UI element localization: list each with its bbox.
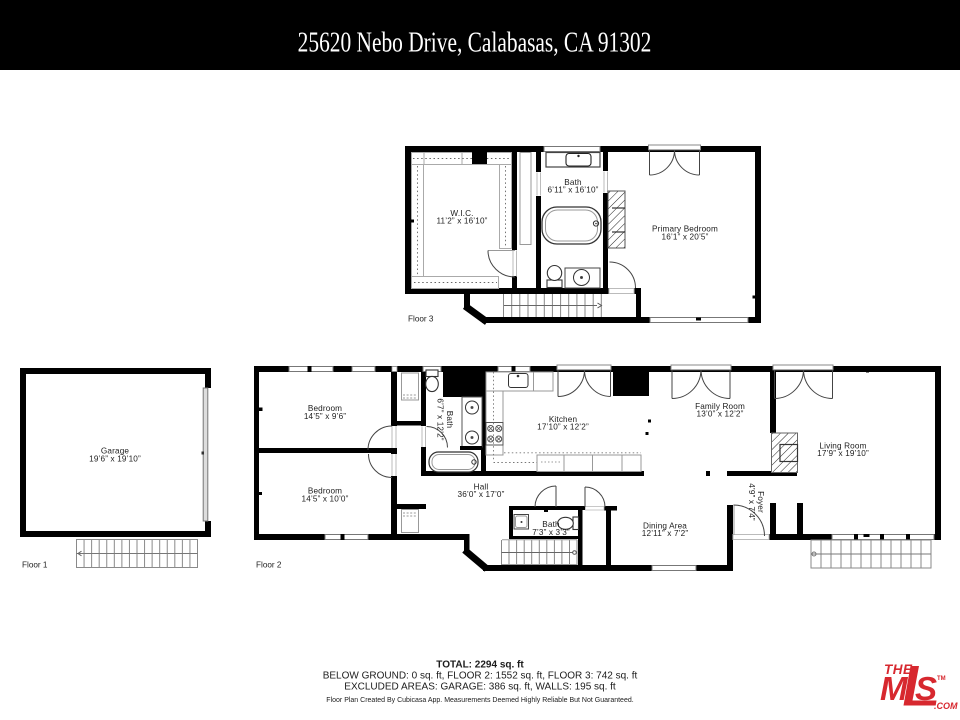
svg-text:Foyer: Foyer: [756, 491, 765, 513]
svg-text:TOTAL: 2294 sq. ft: TOTAL: 2294 sq. ft: [436, 660, 524, 671]
svg-text:Floor Plan Created By Cubicasa: Floor Plan Created By Cubicasa App. Meas…: [326, 697, 633, 704]
svg-text:17’10” x 12’2”: 17’10” x 12’2”: [537, 422, 589, 431]
svg-text:Floor 3: Floor 3: [408, 315, 434, 324]
svg-text:4’9” x 7’4”: 4’9” x 7’4”: [747, 483, 756, 521]
svg-text:BELOW GROUND: 0 sq. ft, FLOOR: BELOW GROUND: 0 sq. ft, FLOOR 2: 1552 sq…: [323, 671, 638, 682]
svg-text:TM: TM: [937, 676, 946, 682]
svg-text:7’3” x 3’3”: 7’3” x 3’3”: [532, 528, 570, 537]
svg-text:6’11” x 16’10”: 6’11” x 16’10”: [547, 186, 598, 195]
svg-text:36’0” x 17’0”: 36’0” x 17’0”: [457, 490, 504, 499]
svg-text:17’9” x 19’10”: 17’9” x 19’10”: [817, 449, 869, 458]
svg-text:Bath: Bath: [445, 411, 454, 429]
svg-text:14’5” x 10’0”: 14’5” x 10’0”: [301, 494, 348, 503]
svg-text:6’7” x 12’2”: 6’7” x 12’2”: [436, 398, 445, 440]
svg-text:14’5” x 9’6”: 14’5” x 9’6”: [304, 412, 346, 421]
svg-text:19’6” x 19’10”: 19’6” x 19’10”: [89, 454, 141, 463]
svg-text:Floor 1: Floor 1: [22, 561, 48, 570]
svg-text:Floor 2: Floor 2: [256, 561, 282, 570]
svg-text:25620 Nebo Drive, Calabasas, C: 25620 Nebo Drive, Calabasas, CA 91302: [298, 28, 652, 58]
svg-text:16’1” x 20’5”: 16’1” x 20’5”: [661, 232, 708, 241]
svg-text:EXCLUDED AREAS: GARAGE: 386 sq: EXCLUDED AREAS: GARAGE: 386 sq. ft, WALL…: [344, 682, 616, 693]
svg-text:.COM: .COM: [934, 701, 958, 711]
svg-text:13’0” x 12’2”: 13’0” x 12’2”: [696, 409, 743, 418]
svg-text:11’2” x 16’10”: 11’2” x 16’10”: [436, 217, 487, 226]
svg-text:12’11” x 7’2”: 12’11” x 7’2”: [642, 529, 689, 538]
